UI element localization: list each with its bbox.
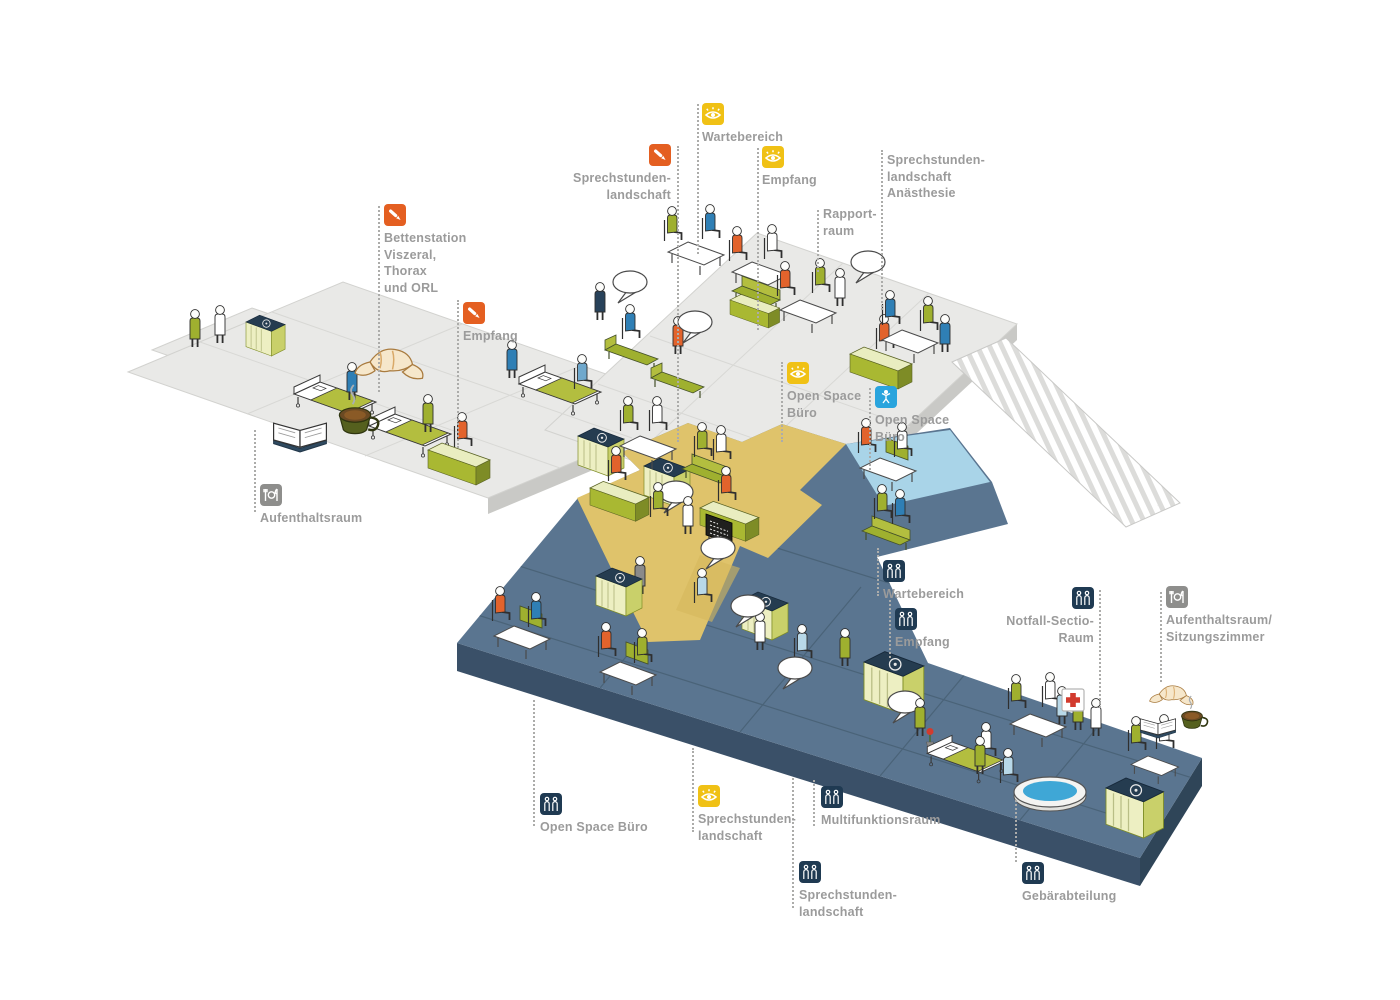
croissant-prop (1150, 686, 1193, 705)
label-sprechstunden-top: Sprechstunden- landschaft (557, 144, 671, 203)
leader-line (457, 300, 459, 448)
leader-line (697, 104, 699, 254)
leader-line (1099, 590, 1101, 708)
open-book-prop (1140, 719, 1175, 738)
eye-icon (762, 146, 784, 168)
label-sprechstunden-mid: Sprechstunden- landschaft (698, 785, 796, 844)
label-bettenstation: Bettenstation Viszeral, Thorax und ORL (384, 204, 466, 296)
label-wartebereich-top: Wartebereich (702, 103, 783, 146)
leader-line (533, 700, 535, 826)
label-text: Bettenstation Viszeral, Thorax und ORL (384, 230, 466, 296)
eye-icon (787, 362, 809, 384)
label-gebaerabteilung: Gebärabteilung (1022, 862, 1116, 905)
leader-line (813, 780, 815, 826)
duo-icon (1072, 587, 1094, 609)
label-sprechstunden-lower: Sprechstunden- landschaft (799, 861, 897, 920)
duo-icon (883, 560, 905, 582)
eye-icon (698, 785, 720, 807)
baby-icon (875, 386, 897, 408)
scalpel-icon (384, 204, 406, 226)
cutlery-icon (260, 484, 282, 506)
label-text: Sprechstunden- landschaft (573, 170, 671, 203)
illustration-canvas (0, 0, 1400, 1000)
label-empfang-top: Empfang (762, 146, 817, 189)
label-text: Empfang (762, 172, 817, 189)
eye-icon (702, 103, 724, 125)
label-aufenthaltsraum-upper: Aufenthaltsraum (260, 484, 362, 527)
duo-icon (895, 608, 917, 630)
label-rapportraum: Rapport- raum (823, 206, 877, 239)
duo-icon (821, 786, 843, 808)
label-text: Empfang (895, 634, 950, 651)
leader-line (877, 548, 879, 596)
label-empfang-gray: Empfang (463, 302, 518, 345)
cutlery-icon (1166, 586, 1188, 608)
leader-line (869, 388, 871, 470)
label-text: Notfall-Sectio- Raum (1006, 613, 1094, 646)
label-aufenthaltsraum-lower: Aufenthaltsraum/ Sitzungszimmer (1166, 586, 1272, 645)
leader-line (1160, 592, 1162, 682)
label-openspace-yellow: Open Space Büro (787, 362, 861, 421)
label-text: Sprechstunden- landschaft (799, 887, 897, 920)
label-text: Open Space Büro (875, 412, 949, 445)
leader-line (378, 206, 380, 392)
label-text: Open Space Büro (787, 388, 861, 421)
leader-line (254, 430, 256, 512)
label-text: Open Space Büro (540, 819, 648, 836)
leader-line (677, 146, 679, 442)
leader-line (817, 210, 819, 272)
label-openspace-blue: Open Space Büro (875, 386, 949, 445)
label-openspace-lower: Open Space Büro (540, 793, 648, 836)
label-multifunktionsraum: Multifunktionsraum (821, 786, 941, 829)
label-text: Wartebereich (702, 129, 783, 146)
label-text: Wartebereich (883, 586, 964, 603)
label-text: Multifunktionsraum (821, 812, 941, 829)
label-text: Sprechstunden- landschaft (698, 811, 796, 844)
red-cross-sign (1062, 689, 1084, 711)
scalpel-icon (649, 144, 671, 166)
label-text: Rapport- raum (823, 206, 877, 239)
leader-line (889, 600, 891, 658)
isometric-hospital-map: Wartebereich Sprechstunden- landschaft E… (0, 0, 1400, 1000)
label-text: Aufenthaltsraum (260, 510, 362, 527)
birthing-tub (1014, 777, 1086, 811)
duo-icon (799, 861, 821, 883)
label-wartebereich-lower: Wartebereich (883, 560, 964, 603)
leader-line (757, 148, 759, 330)
duo-icon (540, 793, 562, 815)
leader-line (1015, 800, 1017, 862)
label-text: Gebärabteilung (1022, 888, 1116, 905)
leader-line (781, 362, 783, 442)
label-notfall-sectio: Notfall-Sectio- Raum (1000, 587, 1094, 646)
leader-line (881, 150, 883, 310)
scalpel-icon (463, 302, 485, 324)
label-text: Sprechstunden- landschaft Anästhesie (887, 152, 985, 202)
label-text: Empfang (463, 328, 518, 345)
label-anaesthesie: Sprechstunden- landschaft Anästhesie (887, 152, 985, 202)
label-text: Aufenthaltsraum/ Sitzungszimmer (1166, 612, 1272, 645)
leader-line (692, 748, 694, 832)
duo-icon (1022, 862, 1044, 884)
label-empfang-lower: Empfang (895, 608, 950, 651)
